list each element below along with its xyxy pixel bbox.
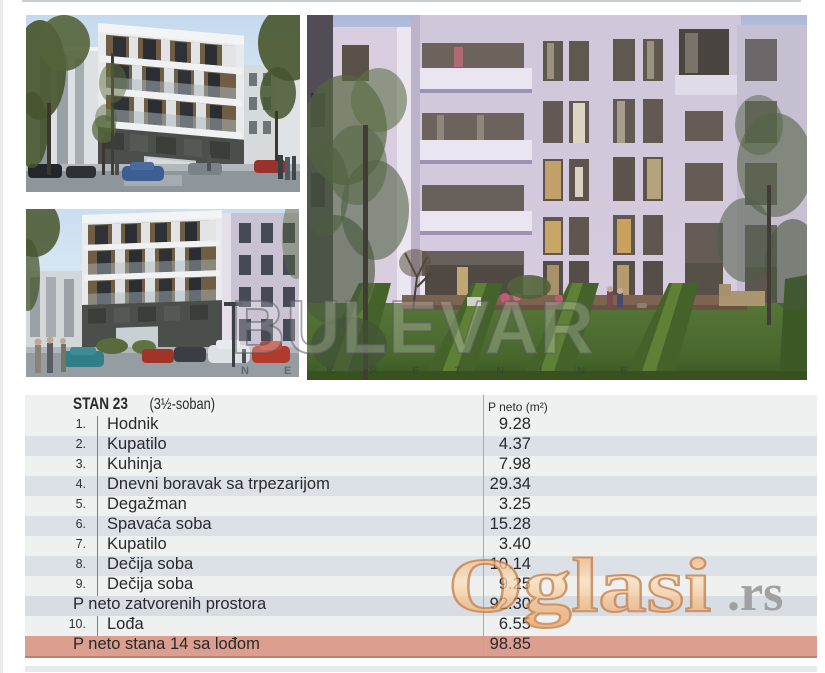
- svg-text:.rs: .rs: [727, 565, 783, 622]
- svg-text:BULEVAR: BULEVAR: [231, 285, 595, 369]
- svg-text:NEKRETNINE: NEKRETNINE: [241, 365, 663, 377]
- svg-text:Oglasi: Oglasi: [448, 542, 711, 628]
